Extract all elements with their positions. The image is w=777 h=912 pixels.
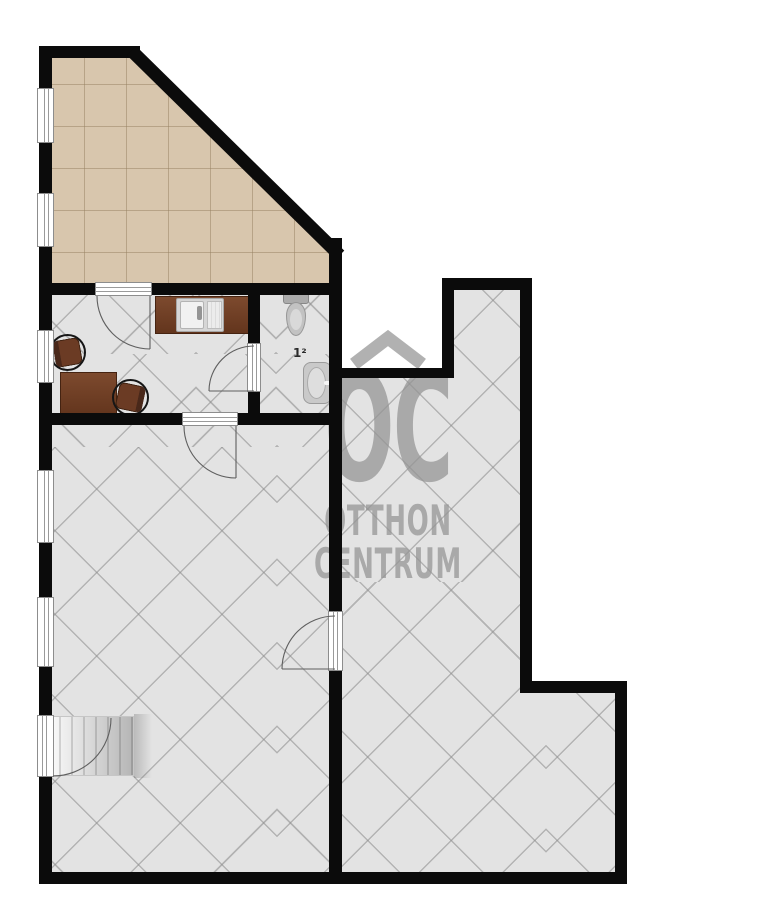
window (37, 470, 54, 543)
wall-rightroom-right (520, 278, 532, 693)
door-opening-entry (37, 715, 54, 777)
toilet-bowl-inner (290, 309, 302, 330)
staircase (48, 716, 134, 776)
wall-mid-bottom (238, 413, 342, 425)
door-opening (182, 412, 238, 426)
wall-rightroom-top (442, 278, 532, 290)
wall-rightroom-step (520, 681, 627, 693)
office-chair-seat (52, 337, 83, 368)
wall-mid-bottom (39, 413, 182, 425)
staircase-fade (134, 714, 152, 778)
wall-terrace-bottom (39, 283, 95, 295)
desk (60, 372, 117, 416)
window (37, 330, 54, 383)
wall-far-right (615, 681, 627, 884)
sink-faucet-icon (197, 306, 202, 320)
wall-bottom (39, 872, 627, 884)
window (37, 193, 54, 247)
wall-divider (248, 295, 260, 343)
wall-rightroom-left-upper (442, 278, 454, 378)
floor-plan: OC OTTHON CENTRUM (0, 0, 777, 912)
wall-left (39, 143, 52, 193)
office-chair-seat (114, 381, 146, 413)
wall-terrace-bottom (152, 283, 342, 295)
window (37, 597, 54, 667)
wall-left (39, 46, 52, 88)
door-opening (95, 282, 152, 296)
wall-left (39, 777, 52, 884)
sink-drainboard (207, 301, 222, 329)
wall-left (39, 667, 52, 715)
floor-hall (52, 425, 329, 872)
wall-left (39, 543, 52, 597)
wall-middle-vertical (329, 671, 342, 884)
wall-top (39, 46, 140, 58)
floor-terrace-tiled (52, 58, 331, 283)
wall-left (39, 383, 52, 470)
wall-connector (342, 368, 454, 378)
door-opening (247, 343, 261, 392)
window (37, 88, 54, 143)
area-label: 1² (293, 346, 307, 360)
door-opening (328, 611, 343, 671)
